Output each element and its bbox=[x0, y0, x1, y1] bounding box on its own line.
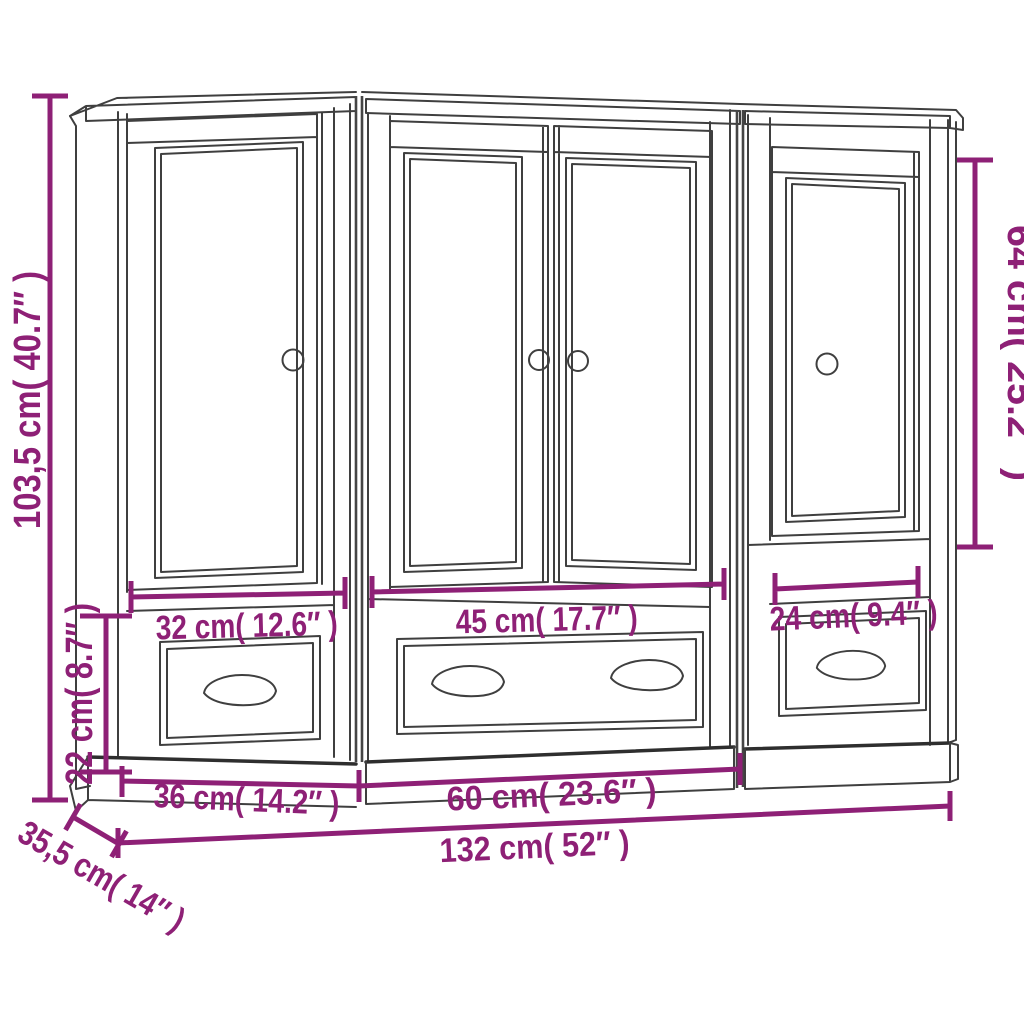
right-cabinet-knob bbox=[817, 354, 838, 375]
middle-cabinet-right-door-panel bbox=[566, 158, 696, 570]
dimension-label: 24 cm( 9.4″ ) bbox=[769, 593, 938, 638]
dimension-middle-unit-width: 60 cm( 23.6″ ) bbox=[359, 753, 740, 819]
middle-cabinet-left-door bbox=[390, 121, 548, 587]
middle-right-divider bbox=[737, 110, 743, 788]
right-cabinet-side-panel bbox=[948, 120, 956, 743]
dimension-right-door-height: 64 cm( 25.2″ ) bbox=[957, 160, 1024, 547]
dimension-label: 45 cm( 17.7″ ) bbox=[455, 599, 638, 642]
right-cabinet-drawer-handle bbox=[817, 651, 885, 680]
middle-cabinet-drawer-handle-right bbox=[611, 660, 683, 690]
left-cabinet-plinth-top-edge bbox=[88, 757, 356, 764]
left-cabinet-cornice bbox=[70, 92, 356, 121]
middle-cabinet-right-door bbox=[554, 126, 712, 587]
right-cabinet-plinth-top-edge bbox=[745, 743, 950, 749]
right-cabinet-door-panel bbox=[786, 178, 905, 522]
middle-cabinet-plinth-top-edge bbox=[366, 747, 734, 762]
dimension-label: 60 cm( 23.6″ ) bbox=[446, 771, 657, 818]
dimension-label: 36 cm( 14.2″ ) bbox=[153, 777, 340, 823]
left-cabinet bbox=[70, 92, 362, 811]
right-cabinet-plinth bbox=[745, 743, 958, 789]
dimension-label: 103,5 cm( 40.7″ ) bbox=[7, 271, 49, 529]
left-cabinet-drawer-handle bbox=[204, 675, 276, 705]
dimension-label: 132 cm( 52″ ) bbox=[439, 824, 631, 871]
right-cabinet-face-frame bbox=[748, 115, 930, 745]
dimension-depth: 35,5 cm( 14″ ) bbox=[11, 804, 191, 939]
left-cabinet-drawer bbox=[160, 636, 320, 745]
right-cabinet bbox=[740, 104, 963, 789]
middle-cabinet-left-door-panel bbox=[404, 153, 522, 572]
middle-cabinet-drawer bbox=[397, 632, 703, 734]
left-middle-divider bbox=[356, 96, 362, 762]
dimension-label: 32 cm( 12.6″ ) bbox=[155, 605, 338, 648]
left-cabinet-knob bbox=[283, 350, 304, 371]
dimension-label: 22 cm( 8.7″ ) bbox=[59, 603, 101, 785]
middle-cabinet-left-knob bbox=[529, 350, 549, 370]
dimension-label: 64 cm( 25.2″ ) bbox=[999, 225, 1024, 481]
middle-cabinet bbox=[362, 92, 743, 804]
middle-cabinet-drawer-handle-left bbox=[432, 666, 504, 696]
middle-cabinet-cornice bbox=[362, 92, 740, 124]
dimension-line bbox=[957, 160, 993, 547]
furniture-dimension-diagram: 103,5 cm( 40.7″ ) 22 cm( 8.7″ ) 64 cm( 2… bbox=[0, 0, 1024, 1024]
dimension-left-door-width: 32 cm( 12.6″ ) bbox=[131, 577, 345, 647]
left-cabinet-door-panel bbox=[155, 142, 303, 578]
dimension-left-unit-width: 36 cm( 14.2″ ) bbox=[122, 766, 359, 823]
right-cabinet-door bbox=[772, 147, 919, 536]
left-cabinet-door bbox=[127, 113, 322, 590]
dimension-right-door-width: 24 cm( 9.4″ ) bbox=[769, 566, 938, 639]
product-dimension-image: 103,5 cm( 40.7″ ) 22 cm( 8.7″ ) 64 cm( 2… bbox=[0, 0, 1024, 1024]
